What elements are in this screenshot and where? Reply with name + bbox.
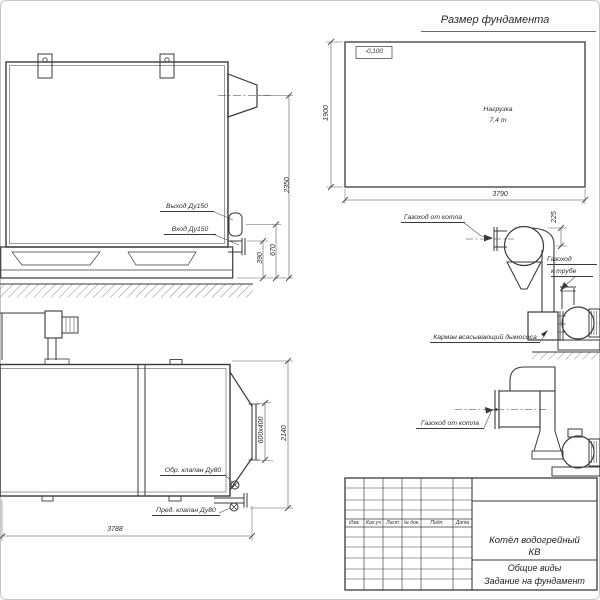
plan-view-dim-length: 3788 — [85, 526, 145, 534]
title-block-col-koluch: Кол.уч — [364, 520, 383, 527]
foundation-title: Размер фундамента — [410, 14, 580, 26]
foundation-elevation-mark: -0,100 — [356, 48, 392, 55]
plan-view-check-valve-label: Обр. клапан Ду80 — [160, 467, 226, 476]
title-block-col-podp: Подп. — [421, 520, 453, 527]
title-block — [345, 478, 597, 590]
title-block-product-line2: КВ — [472, 547, 597, 558]
side-view-dimensions — [212, 93, 293, 282]
drawing-sheet: Размер фундамента -0,100 Нагрузка 7,4 т … — [0, 0, 600, 600]
plan-view-dimensions — [0, 358, 293, 541]
boiler-plan-view — [0, 311, 260, 511]
side-view-dim-inlet-height: 390 — [257, 243, 265, 273]
drawing-linework — [0, 0, 600, 600]
side-view-inlet-label: Вход Ду150 — [164, 226, 216, 235]
flue-cyclone-dim-offset: 225 — [551, 202, 559, 232]
foundation-load-label-line2: 7,4 т — [458, 117, 538, 125]
foundation-dim-length: 3790 — [470, 191, 530, 199]
side-view-outlet-label: Выход Ду150 — [160, 203, 214, 212]
title-block-doc-line1: Общие виды — [472, 563, 597, 573]
title-block-col-ndok: № док. — [402, 520, 421, 527]
flue-cyclone-from-boiler-label: Газоход от котла — [401, 214, 465, 223]
side-view-dim-total-height: 2350 — [284, 165, 292, 205]
flue-cyclone-pocket-label: Карман всасывающий дымососа — [430, 334, 540, 343]
plan-view-dim-outlet: 600x400 — [258, 410, 266, 450]
flue-to-stack-label-line2: к трубе — [551, 268, 593, 277]
flue-direct-from-boiler-label: Газоход от котла — [416, 420, 484, 429]
title-block-col-data: Дата — [453, 520, 472, 527]
title-block-doc-line2: Задание на фундамент — [472, 576, 597, 586]
boiler-side-view — [0, 54, 274, 298]
title-block-col-list: Лист — [383, 520, 402, 527]
title-block-col-izm: Изм. — [345, 520, 364, 527]
plan-view-dim-width: 2140 — [281, 413, 289, 453]
side-view-dim-outlet-height: 670 — [270, 235, 278, 265]
plan-view-safety-valve-label: Пред. клапан Ду80 — [152, 507, 220, 516]
title-block-product-line1: Котёл водогрейный — [472, 535, 597, 546]
foundation-dim-width: 1900 — [323, 93, 331, 133]
flue-to-stack-label-line1: Газоход — [547, 256, 597, 265]
foundation-load-label-line1: Нагрузка — [458, 106, 538, 114]
